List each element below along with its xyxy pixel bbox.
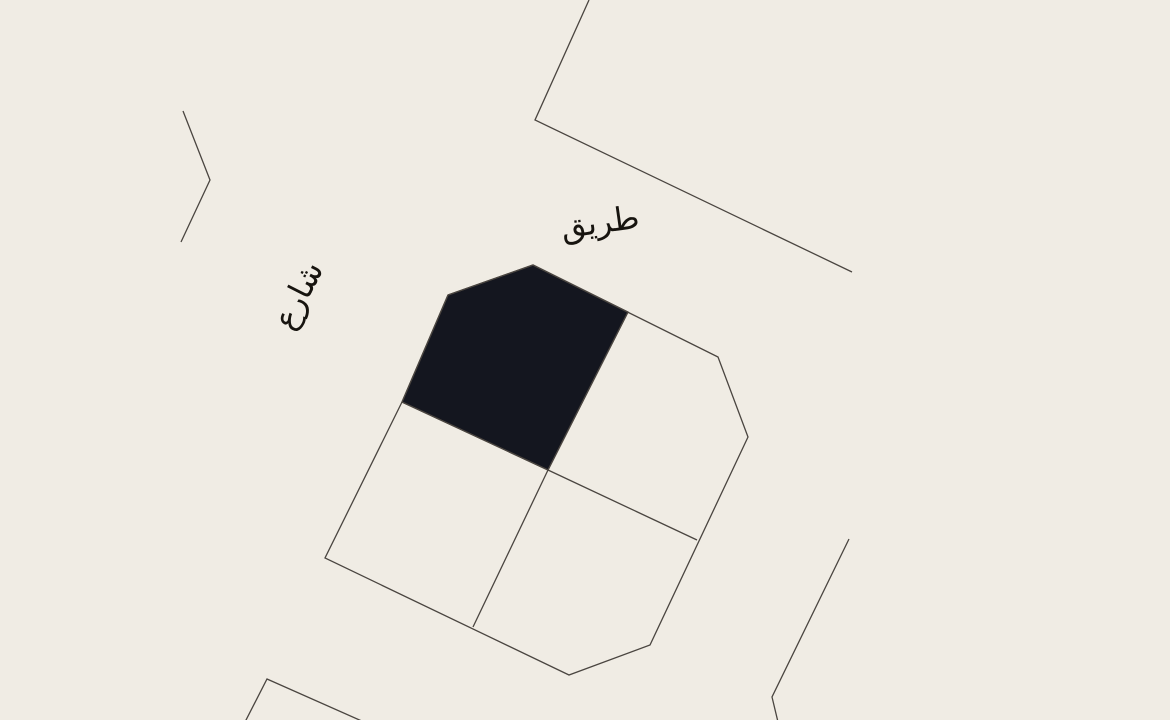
parcel-divider-south: [473, 470, 548, 627]
parcel-divider-east: [548, 470, 697, 540]
road-label: طريق: [559, 201, 641, 244]
parcel-map-svg: [0, 0, 1170, 720]
boundary-southwest: [245, 679, 364, 720]
boundary-southeast: [772, 539, 849, 720]
boundary-chevron-west: [181, 111, 210, 242]
parcel-map[interactable]: طريقشارع: [0, 0, 1170, 720]
